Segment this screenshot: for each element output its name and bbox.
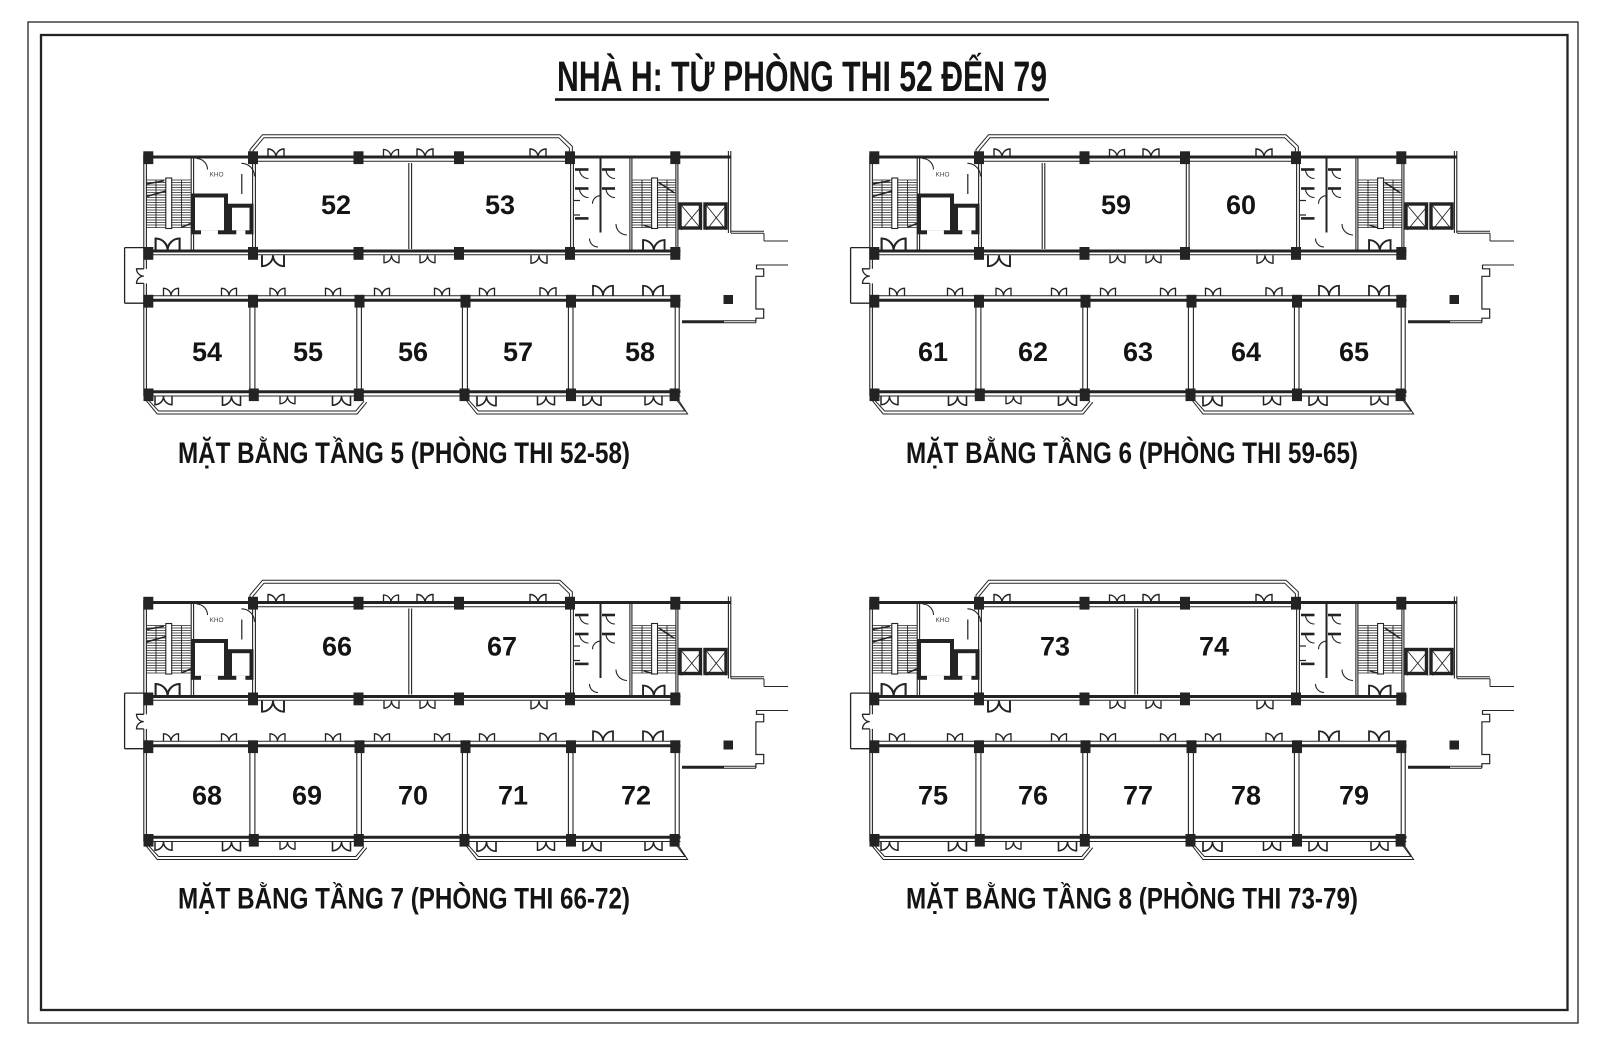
svg-text:60: 60 xyxy=(1226,190,1256,220)
svg-text:76: 76 xyxy=(1018,781,1048,811)
svg-text:61: 61 xyxy=(918,337,948,367)
svg-text:66: 66 xyxy=(322,632,352,662)
svg-text:71: 71 xyxy=(498,781,528,811)
svg-text:59: 59 xyxy=(1101,190,1131,220)
svg-text:65: 65 xyxy=(1339,337,1369,367)
svg-text:58: 58 xyxy=(625,337,655,367)
svg-text:67: 67 xyxy=(487,632,517,662)
svg-text:73: 73 xyxy=(1040,632,1070,662)
svg-text:79: 79 xyxy=(1339,781,1369,811)
svg-text:52: 52 xyxy=(321,190,351,220)
svg-text:54: 54 xyxy=(192,337,222,367)
svg-text:MẶT BẰNG TẦNG 7 (PHÒNG THI 66-: MẶT BẰNG TẦNG 7 (PHÒNG THI 66-72) xyxy=(178,882,630,916)
svg-text:68: 68 xyxy=(192,781,222,811)
svg-text:74: 74 xyxy=(1199,632,1229,662)
svg-text:56: 56 xyxy=(398,337,428,367)
svg-text:MẶT BẰNG TẦNG 6 (PHÒNG THI 59-: MẶT BẰNG TẦNG 6 (PHÒNG THI 59-65) xyxy=(906,436,1358,470)
svg-text:NHÀ H: TỪ PHÒNG THI 52 ĐẾN 79: NHÀ H: TỪ PHÒNG THI 52 ĐẾN 79 xyxy=(557,52,1047,101)
svg-text:63: 63 xyxy=(1123,337,1153,367)
svg-text:77: 77 xyxy=(1123,781,1153,811)
svg-text:78: 78 xyxy=(1231,781,1261,811)
svg-text:MẶT BẰNG TẦNG 8 (PHÒNG THI 73-: MẶT BẰNG TẦNG 8 (PHÒNG THI 73-79) xyxy=(906,882,1358,916)
svg-text:72: 72 xyxy=(621,781,651,811)
svg-text:75: 75 xyxy=(918,781,948,811)
svg-text:64: 64 xyxy=(1231,337,1261,367)
svg-text:57: 57 xyxy=(503,337,533,367)
svg-text:69: 69 xyxy=(292,781,322,811)
svg-text:70: 70 xyxy=(398,781,428,811)
svg-text:62: 62 xyxy=(1018,337,1048,367)
svg-text:55: 55 xyxy=(293,337,323,367)
svg-text:53: 53 xyxy=(485,190,515,220)
svg-text:MẶT BẰNG TẦNG 5 (PHÒNG THI 52-: MẶT BẰNG TẦNG 5 (PHÒNG THI 52-58) xyxy=(178,436,630,470)
